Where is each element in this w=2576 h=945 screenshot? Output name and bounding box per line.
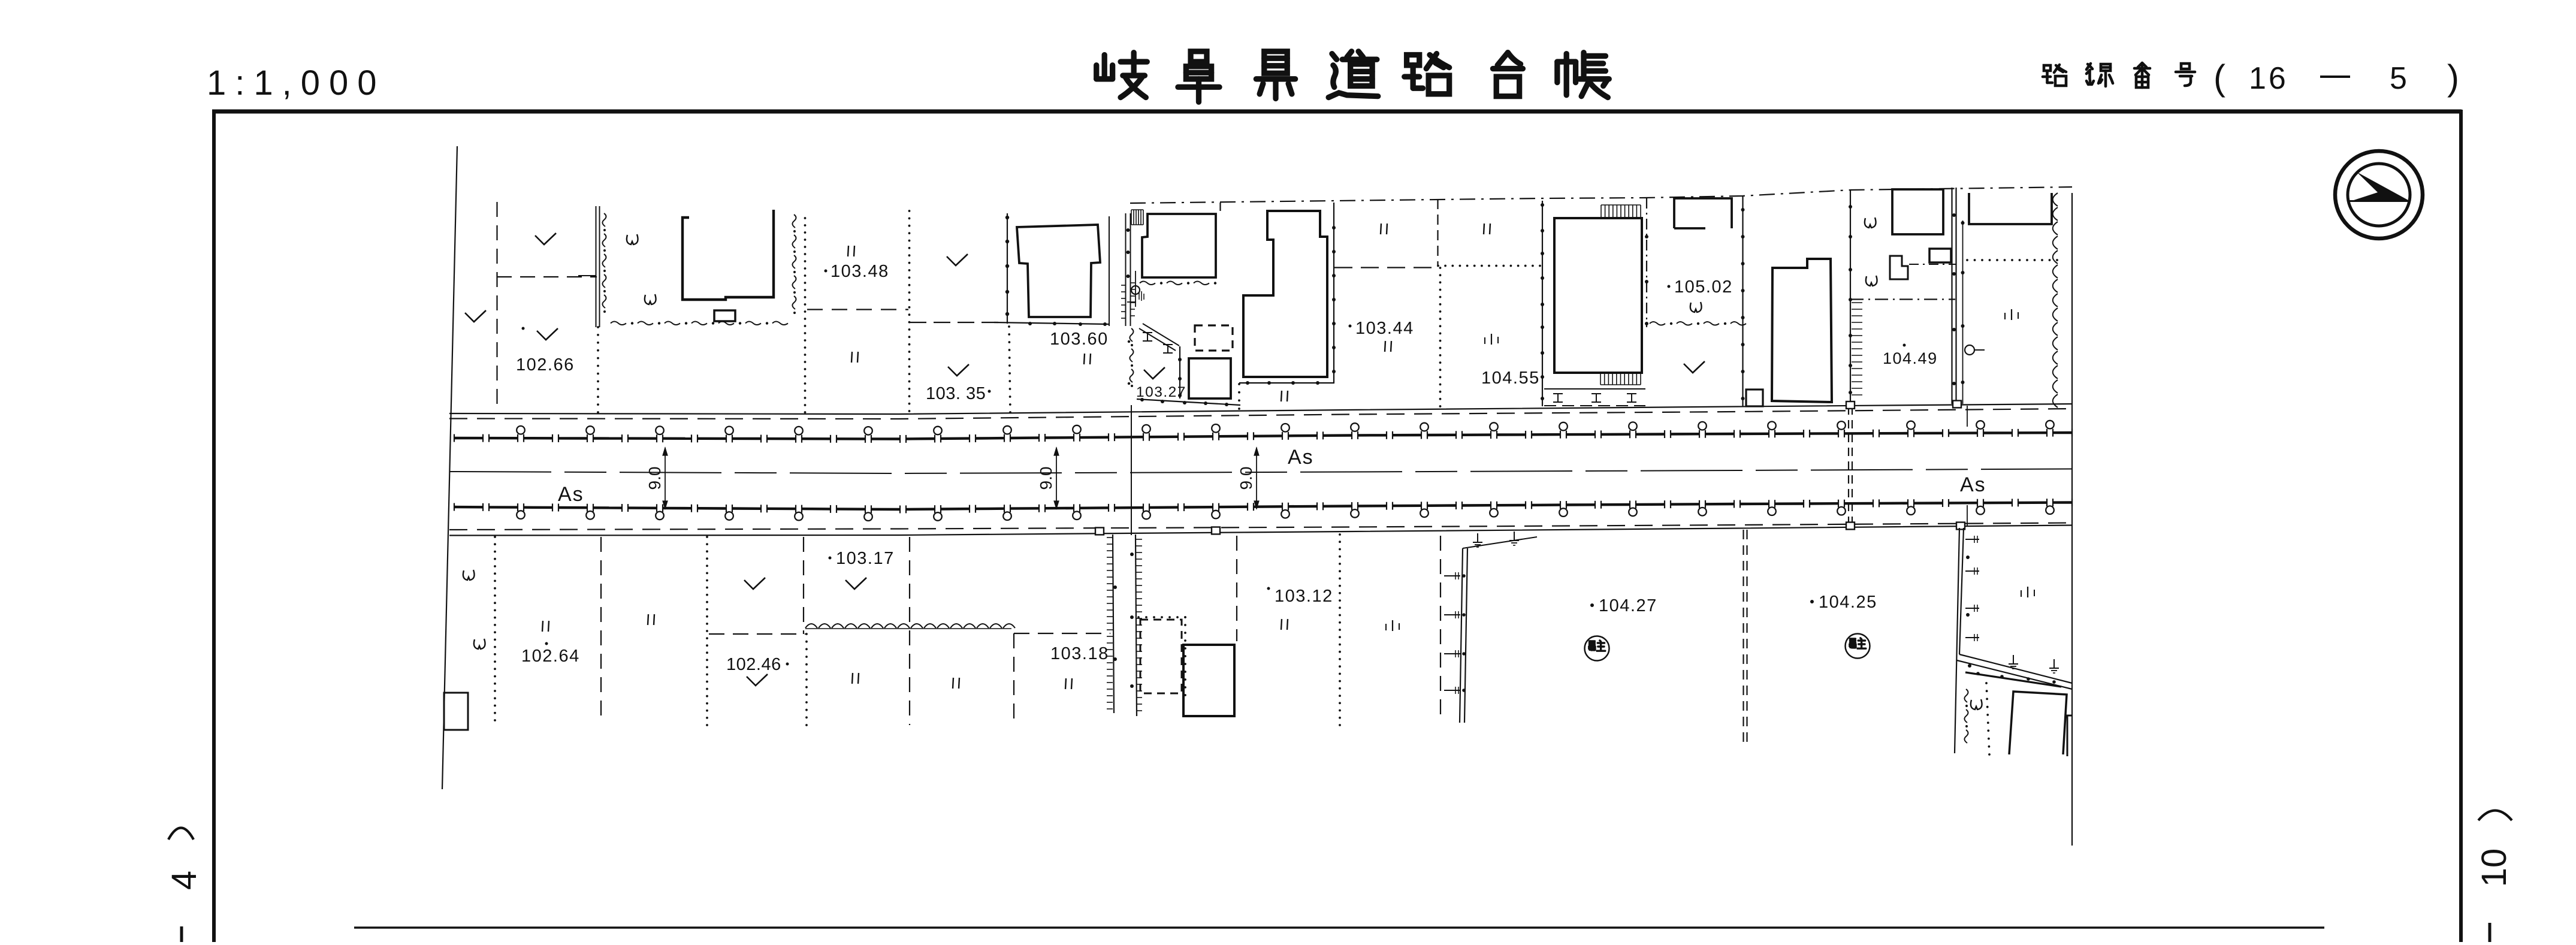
svg-text:As: As xyxy=(1288,446,1314,469)
svg-text:9.0: 9.0 xyxy=(1237,467,1255,490)
svg-text:104.25: 104.25 xyxy=(1819,593,1877,612)
svg-text:104.49: 104.49 xyxy=(1883,349,1938,367)
svg-text:103.27: 103.27 xyxy=(1136,384,1186,400)
svg-text:102.66: 102.66 xyxy=(516,355,575,375)
svg-text:102.64: 102.64 xyxy=(521,647,580,666)
svg-text:10: 10 xyxy=(2475,849,2514,887)
svg-text:103.60: 103.60 xyxy=(1050,330,1109,349)
svg-text:103.12: 103.12 xyxy=(1275,587,1333,606)
svg-text:9.0: 9.0 xyxy=(1037,467,1055,490)
svg-text:(: ( xyxy=(2213,58,2225,98)
svg-text:9.0: 9.0 xyxy=(645,467,664,490)
svg-text:5: 5 xyxy=(2390,61,2407,96)
svg-text:104.27: 104.27 xyxy=(1599,596,1657,615)
svg-text:103.17: 103.17 xyxy=(836,549,895,568)
svg-text:103.18: 103.18 xyxy=(1050,644,1109,663)
svg-text:103.48: 103.48 xyxy=(831,262,889,281)
svg-text:105.02: 105.02 xyxy=(1674,277,1733,297)
svg-text:4: 4 xyxy=(165,871,204,890)
svg-text:): ) xyxy=(2447,58,2459,98)
svg-text:As: As xyxy=(558,483,584,506)
svg-text:102.46: 102.46 xyxy=(726,655,781,674)
svg-text:16: 16 xyxy=(2249,61,2288,96)
svg-text:104.55: 104.55 xyxy=(1481,369,1540,388)
svg-text:103. 35: 103. 35 xyxy=(926,384,986,403)
svg-text:As: As xyxy=(1960,473,1986,496)
svg-text:1:1,000: 1:1,000 xyxy=(207,64,386,102)
svg-text:103.44: 103.44 xyxy=(1355,319,1414,338)
